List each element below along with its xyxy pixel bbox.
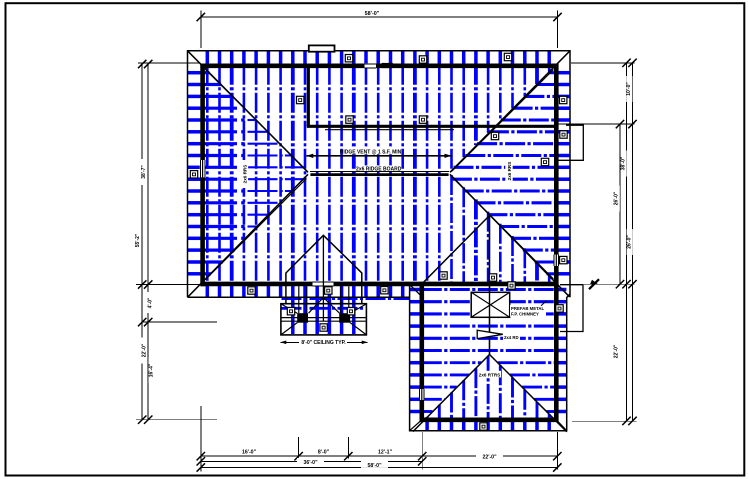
svg-text:58'-0": 58'-0": [365, 11, 380, 17]
svg-text:12'-1": 12'-1": [378, 450, 393, 456]
svg-text:2x6 RRS: 2x6 RRS: [242, 165, 247, 184]
svg-text:36'-0": 36'-0": [303, 460, 318, 466]
svg-text:F.P. CHIMNEY: F.P. CHIMNEY: [511, 311, 539, 316]
svg-text:38'-0": 38'-0": [621, 156, 627, 170]
svg-text:26'-0": 26'-0": [614, 191, 620, 205]
svg-text:22'-0": 22'-0": [141, 343, 147, 357]
svg-text:26'-0": 26'-0": [627, 235, 633, 249]
svg-text:8'-0" CEILING TYP.: 8'-0" CEILING TYP.: [301, 340, 346, 346]
svg-text:38'-7": 38'-7": [141, 165, 147, 179]
svg-text:58'-0": 58'-0": [367, 463, 382, 469]
svg-text:8'-0": 8'-0": [318, 450, 330, 456]
svg-text:2x6 RRS: 2x6 RRS: [507, 162, 512, 181]
svg-text:PREFAB METAL: PREFAB METAL: [511, 306, 544, 311]
svg-text:16'-4": 16'-4": [148, 363, 154, 377]
svg-text:55'-2": 55'-2": [135, 233, 141, 247]
svg-text:2x4 RD: 2x4 RD: [504, 335, 519, 340]
svg-text:22'-0": 22'-0": [614, 344, 620, 358]
svg-text:4'-0": 4'-0": [147, 297, 153, 308]
svg-text:16'-0": 16'-0": [242, 450, 257, 456]
svg-text:2x6 RIDGE BOARD: 2x6 RIDGE BOARD: [356, 166, 402, 172]
svg-text:22'-0": 22'-0": [482, 455, 497, 461]
svg-text:2x6 RTRS: 2x6 RTRS: [479, 372, 500, 377]
svg-text:10'-0": 10'-0": [626, 82, 632, 96]
svg-text:RIDGE VENT @ 1 S.F. MIN: RIDGE VENT @ 1 S.F. MIN: [340, 149, 402, 155]
